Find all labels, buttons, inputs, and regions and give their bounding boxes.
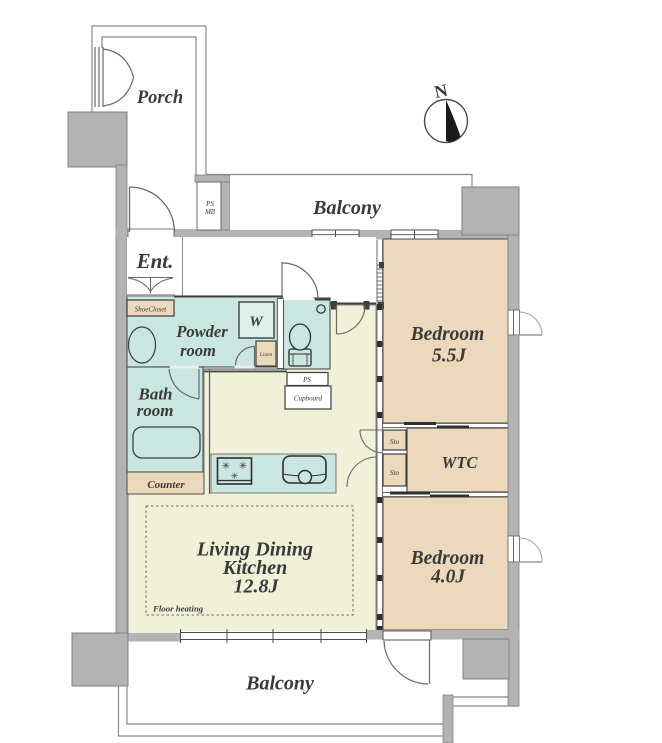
svg-text:room: room — [180, 341, 216, 360]
svg-text:Bedroom: Bedroom — [410, 324, 485, 345]
svg-text:Sto: Sto — [390, 468, 400, 477]
svg-text:Counter: Counter — [147, 479, 185, 491]
svg-text:ShoeCloset: ShoeCloset — [135, 306, 168, 314]
svg-text:Porch: Porch — [136, 88, 183, 108]
svg-text:Balcony: Balcony — [245, 673, 314, 695]
svg-text:PS: PS — [205, 200, 214, 208]
svg-text:Floor heating: Floor heating — [152, 604, 204, 614]
svg-text:PS: PS — [302, 376, 311, 384]
svg-text:12.8J: 12.8J — [234, 576, 280, 598]
svg-text:W: W — [249, 314, 264, 330]
svg-text:Ent.: Ent. — [136, 249, 174, 273]
svg-text:✳: ✳ — [239, 461, 247, 472]
svg-text:✳: ✳ — [222, 461, 230, 472]
svg-text:Cupboard: Cupboard — [294, 395, 323, 403]
svg-text:WTC: WTC — [442, 453, 479, 472]
svg-text:Powder: Powder — [175, 322, 228, 341]
svg-text:✳: ✳ — [231, 471, 239, 481]
svg-text:4.0J: 4.0J — [430, 567, 466, 588]
svg-text:Sto: Sto — [390, 437, 400, 446]
svg-text:MB: MB — [204, 208, 216, 216]
svg-text:room: room — [137, 401, 174, 420]
svg-text:5.5J: 5.5J — [432, 346, 467, 367]
svg-text:Linen: Linen — [259, 352, 273, 358]
svg-text:Balcony: Balcony — [312, 197, 381, 219]
